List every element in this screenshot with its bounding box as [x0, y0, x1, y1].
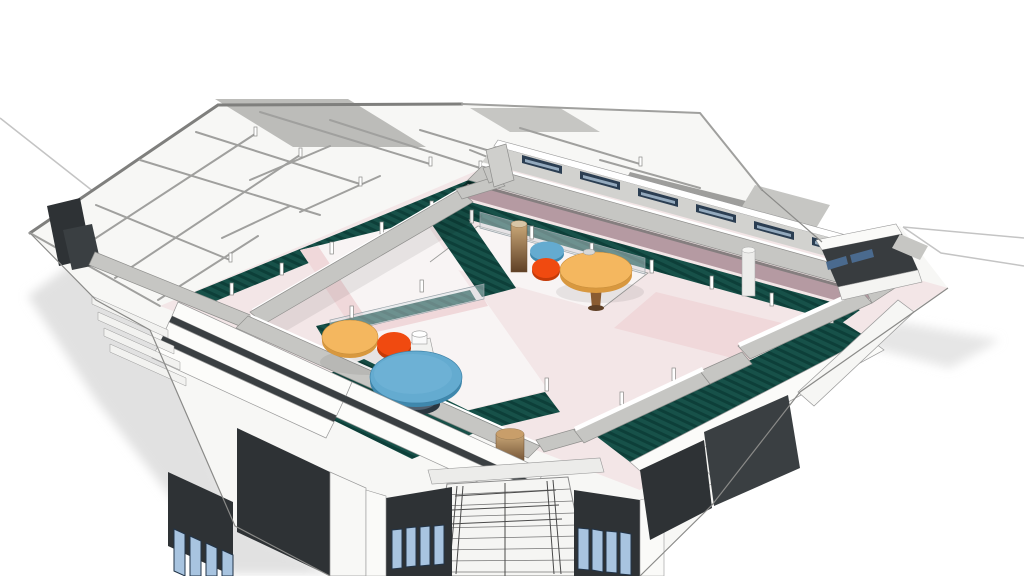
model-canvas — [0, 0, 1024, 576]
blue-window — [434, 525, 444, 565]
blue-window — [190, 536, 201, 576]
blue-window — [606, 531, 617, 573]
blue-window — [578, 528, 589, 570]
entrance-flank-west — [386, 487, 452, 576]
blue-window — [420, 526, 430, 566]
blue-round-table-small — [530, 242, 564, 261]
orange-round-table-east — [560, 252, 632, 288]
entrance-flank-east — [574, 490, 640, 576]
orange-round-table — [322, 320, 378, 354]
red-round-table-small — [532, 258, 560, 278]
architectural-rendering — [0, 0, 1024, 576]
blue-window — [222, 550, 233, 576]
blue-window — [174, 529, 185, 576]
grey-cup — [583, 249, 595, 255]
blue-window — [620, 532, 631, 575]
blue-window — [406, 527, 416, 567]
white-column-east — [742, 247, 755, 296]
blue-window — [592, 529, 603, 572]
blue-window — [206, 543, 217, 576]
timber-column-north — [511, 221, 527, 273]
blue-window — [392, 529, 402, 569]
